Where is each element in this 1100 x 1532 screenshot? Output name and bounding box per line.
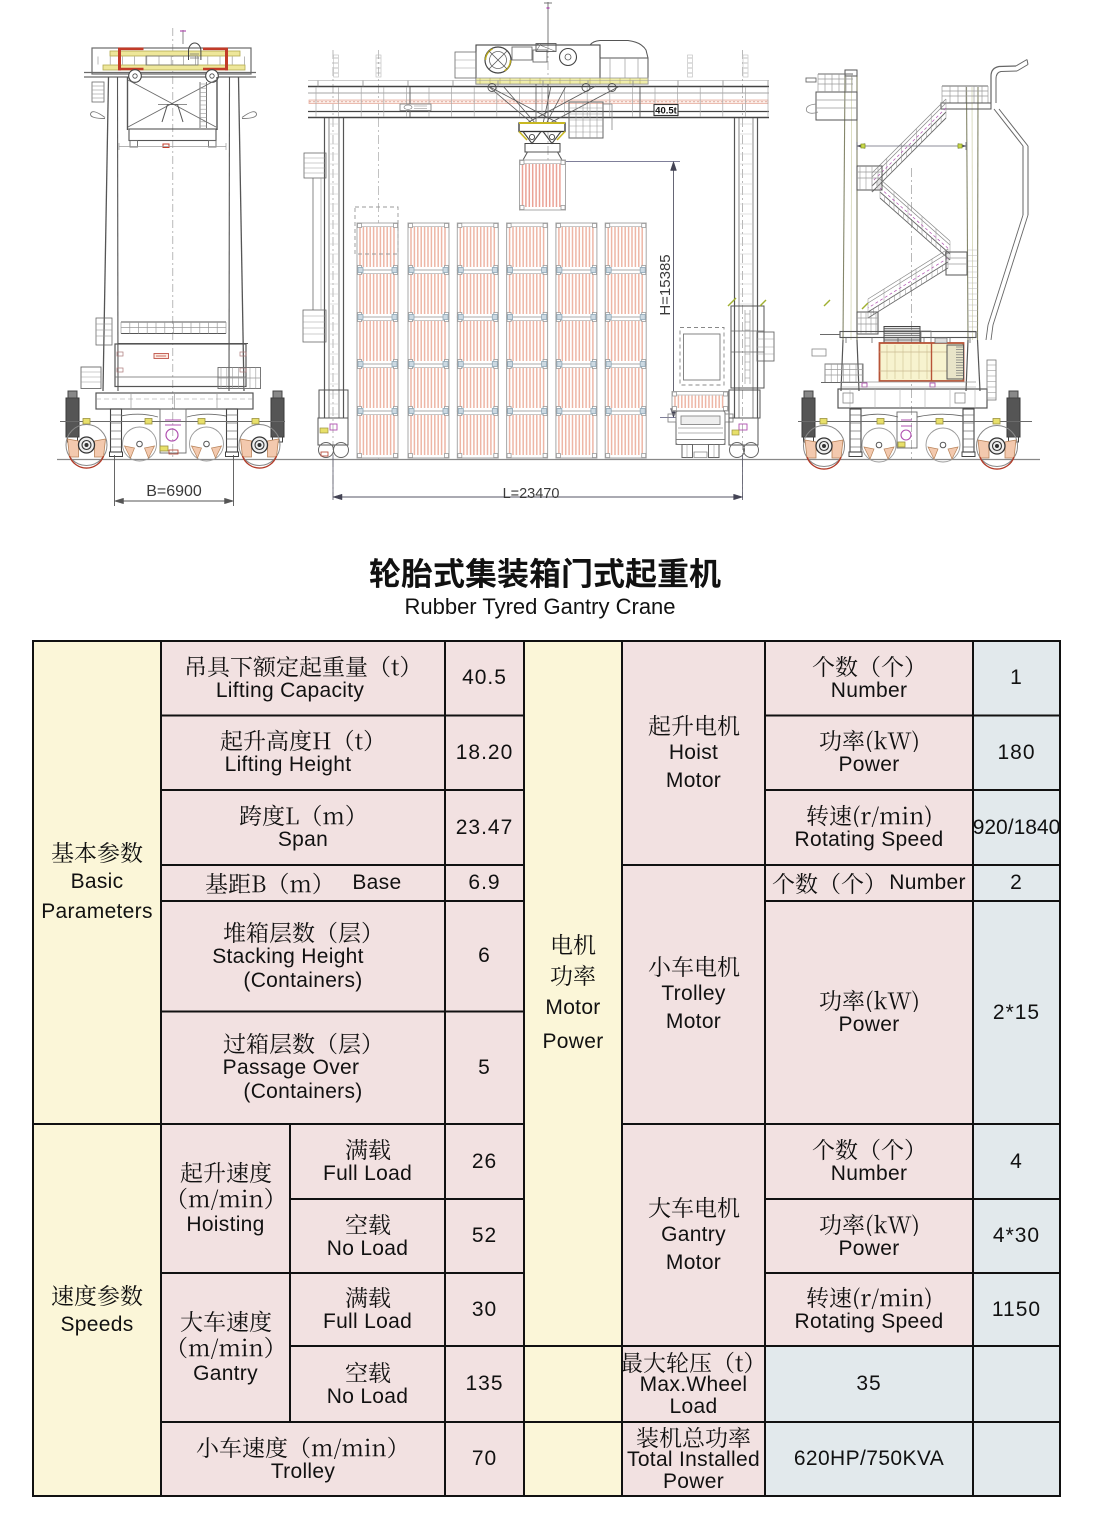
svg-text:H=15385: H=15385 <box>657 254 674 315</box>
svg-text:40.5t: 40.5t <box>655 105 677 116</box>
svg-text:B=6900: B=6900 <box>146 483 202 500</box>
svg-text:L=23470: L=23470 <box>503 486 560 502</box>
